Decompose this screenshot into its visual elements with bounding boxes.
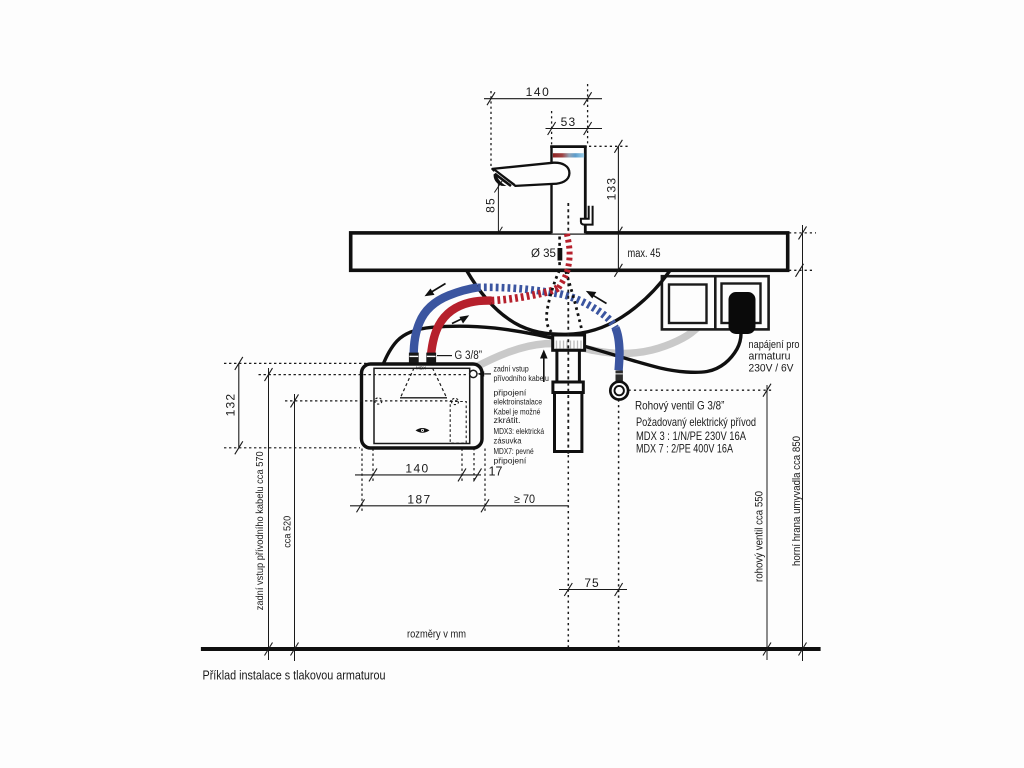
svg-text:53: 53 xyxy=(561,115,577,129)
svg-text:zadní vstup přívodního kabelu: zadní vstup přívodního kabelu cca 570 xyxy=(254,451,266,610)
svg-text:elektroinstalace: elektroinstalace xyxy=(494,397,543,407)
svg-text:cca 520: cca 520 xyxy=(281,516,293,548)
svg-text:230V / 6V: 230V / 6V xyxy=(749,362,795,374)
svg-text:≥ 70: ≥ 70 xyxy=(514,494,535,506)
svg-text:133: 133 xyxy=(604,177,618,201)
svg-text:MDX 7 : 2/PE 400V 16A: MDX 7 : 2/PE 400V 16A xyxy=(636,442,733,456)
svg-text:Příklad instalace s tlakovou a: Příklad instalace s tlakovou armaturou xyxy=(203,668,386,683)
svg-text:Rohový ventil G 3/8”: Rohový ventil G 3/8” xyxy=(635,399,724,413)
svg-text:85: 85 xyxy=(484,197,498,213)
svg-text:připojení: připojení xyxy=(494,456,527,466)
svg-text:rohový ventil cca 550: rohový ventil cca 550 xyxy=(753,491,765,582)
svg-text:rozměry v mm: rozměry v mm xyxy=(407,629,466,641)
svg-text:MDX: MDX xyxy=(416,366,426,371)
svg-text:140: 140 xyxy=(405,462,429,476)
svg-text:17: 17 xyxy=(489,465,503,479)
svg-text:zkrátit.: zkrátit. xyxy=(494,415,521,425)
svg-text:75: 75 xyxy=(584,576,599,590)
svg-text:140: 140 xyxy=(526,85,551,99)
svg-text:přívodního kabelu: přívodního kabelu xyxy=(494,373,550,383)
svg-text:Požadovaný elektrický přívod: Požadovaný elektrický přívod xyxy=(636,415,756,429)
svg-text:napájení pro: napájení pro xyxy=(749,339,800,351)
svg-text:horní hrana umyvadla cca 850: horní hrana umyvadla cca 850 xyxy=(791,436,803,566)
svg-text:MDX7: pevné: MDX7: pevné xyxy=(494,446,534,456)
svg-text:zadní vstup: zadní vstup xyxy=(494,363,529,373)
svg-text:132: 132 xyxy=(224,393,238,417)
svg-text:max. 45: max. 45 xyxy=(628,248,661,260)
svg-text:Ø 35: Ø 35 xyxy=(531,248,556,260)
svg-text:zásuvka: zásuvka xyxy=(494,435,522,445)
svg-text:G 3/8”: G 3/8” xyxy=(455,350,483,362)
svg-text:187: 187 xyxy=(407,493,431,507)
svg-text:armaturu: armaturu xyxy=(749,350,791,362)
